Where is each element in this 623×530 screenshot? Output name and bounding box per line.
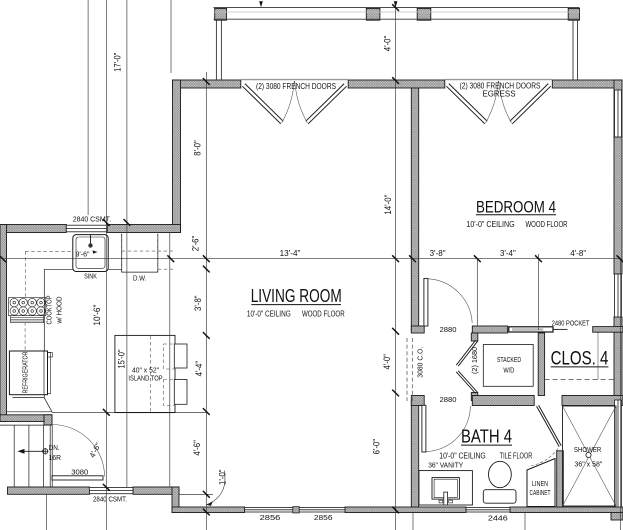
svg-text:2840 CSMT.: 2840 CSMT. bbox=[73, 214, 111, 223]
svg-text:w/ HOOD: w/ HOOD bbox=[55, 297, 64, 325]
svg-text:4'-6": 4'-6" bbox=[192, 440, 202, 456]
svg-text:3080: 3080 bbox=[71, 468, 88, 477]
svg-text:10'-0" CEILING: 10'-0" CEILING bbox=[466, 220, 514, 229]
svg-text:3'-4": 3'-4" bbox=[500, 249, 516, 258]
svg-text:D.W.: D.W. bbox=[133, 274, 147, 283]
svg-text:3'-8": 3'-8" bbox=[430, 249, 446, 258]
svg-text:8'-0": 8'-0" bbox=[193, 140, 203, 156]
svg-text:2856: 2856 bbox=[314, 513, 333, 522]
svg-text:3080 C.O.: 3080 C.O. bbox=[416, 347, 425, 378]
svg-text:14'-0": 14'-0" bbox=[383, 195, 393, 215]
svg-text:CLOS. 4: CLOS. 4 bbox=[551, 348, 609, 370]
svg-text:2480 POCKET: 2480 POCKET bbox=[552, 319, 590, 328]
svg-text:1'-0": 1'-0" bbox=[217, 469, 227, 485]
svg-text:EGRESS: EGRESS bbox=[483, 90, 517, 99]
svg-text:SINK: SINK bbox=[84, 272, 97, 281]
svg-text:BATH 4: BATH 4 bbox=[461, 427, 512, 447]
svg-text:2'-6": 2'-6" bbox=[191, 236, 201, 252]
svg-text:2856: 2856 bbox=[260, 513, 281, 522]
svg-text:CABINET: CABINET bbox=[530, 490, 551, 497]
svg-text:9'-6": 9'-6" bbox=[76, 252, 91, 259]
svg-text:ISLAND TOP: ISLAND TOP bbox=[128, 374, 162, 383]
svg-text:4'-0": 4'-0" bbox=[383, 36, 393, 52]
svg-text:10'-0" CEILING: 10'-0" CEILING bbox=[439, 451, 485, 460]
svg-text:STACKED: STACKED bbox=[497, 355, 522, 364]
svg-text:6'-0": 6'-0" bbox=[371, 439, 381, 455]
svg-text:2840 CSMT.: 2840 CSMT. bbox=[93, 494, 127, 503]
svg-text:SHOWER: SHOWER bbox=[574, 445, 602, 454]
svg-text:TILE FLOOR: TILE FLOOR bbox=[500, 451, 533, 460]
svg-text:WOOD FLOOR: WOOD FLOOR bbox=[525, 220, 567, 229]
svg-text:LINEN: LINEN bbox=[532, 481, 548, 488]
svg-text:16R: 16R bbox=[49, 453, 62, 462]
svg-text:(2) 3080 FRENCH DOORS: (2) 3080 FRENCH DOORS bbox=[256, 82, 336, 91]
svg-text:REFRIGERATOR: REFRIGERATOR bbox=[23, 352, 30, 394]
svg-text:10'-6": 10'-6" bbox=[92, 305, 102, 326]
svg-text:10'-0" CEILING: 10'-0" CEILING bbox=[247, 309, 291, 318]
svg-text:15'-0": 15'-0" bbox=[116, 350, 127, 369]
svg-text:2880: 2880 bbox=[440, 325, 457, 334]
svg-text:36" VANITY: 36" VANITY bbox=[428, 461, 463, 470]
svg-text:4'-4": 4'-4" bbox=[194, 361, 204, 377]
svg-text:2446: 2446 bbox=[488, 514, 508, 523]
svg-text:2880: 2880 bbox=[440, 395, 457, 404]
svg-text:LIVING ROOM: LIVING ROOM bbox=[251, 285, 342, 306]
svg-text:4'-8": 4'-8" bbox=[570, 249, 586, 258]
svg-text:DN.: DN. bbox=[49, 443, 60, 452]
svg-text:COOKTOP: COOKTOP bbox=[45, 295, 54, 324]
svg-text:36" x 58": 36" x 58" bbox=[574, 459, 602, 468]
svg-text:4'-0": 4'-0" bbox=[382, 354, 392, 370]
svg-text:17'-0": 17'-0" bbox=[113, 53, 123, 72]
svg-text:WOOD FLOOR: WOOD FLOOR bbox=[302, 309, 345, 318]
svg-text:BEDROOM 4: BEDROOM 4 bbox=[476, 198, 556, 217]
svg-text:(2) 1680: (2) 1680 bbox=[470, 347, 479, 374]
svg-text:13'-4": 13'-4" bbox=[280, 249, 301, 258]
svg-text:3'-8": 3'-8" bbox=[193, 295, 203, 311]
svg-text:W/D: W/D bbox=[503, 365, 514, 374]
